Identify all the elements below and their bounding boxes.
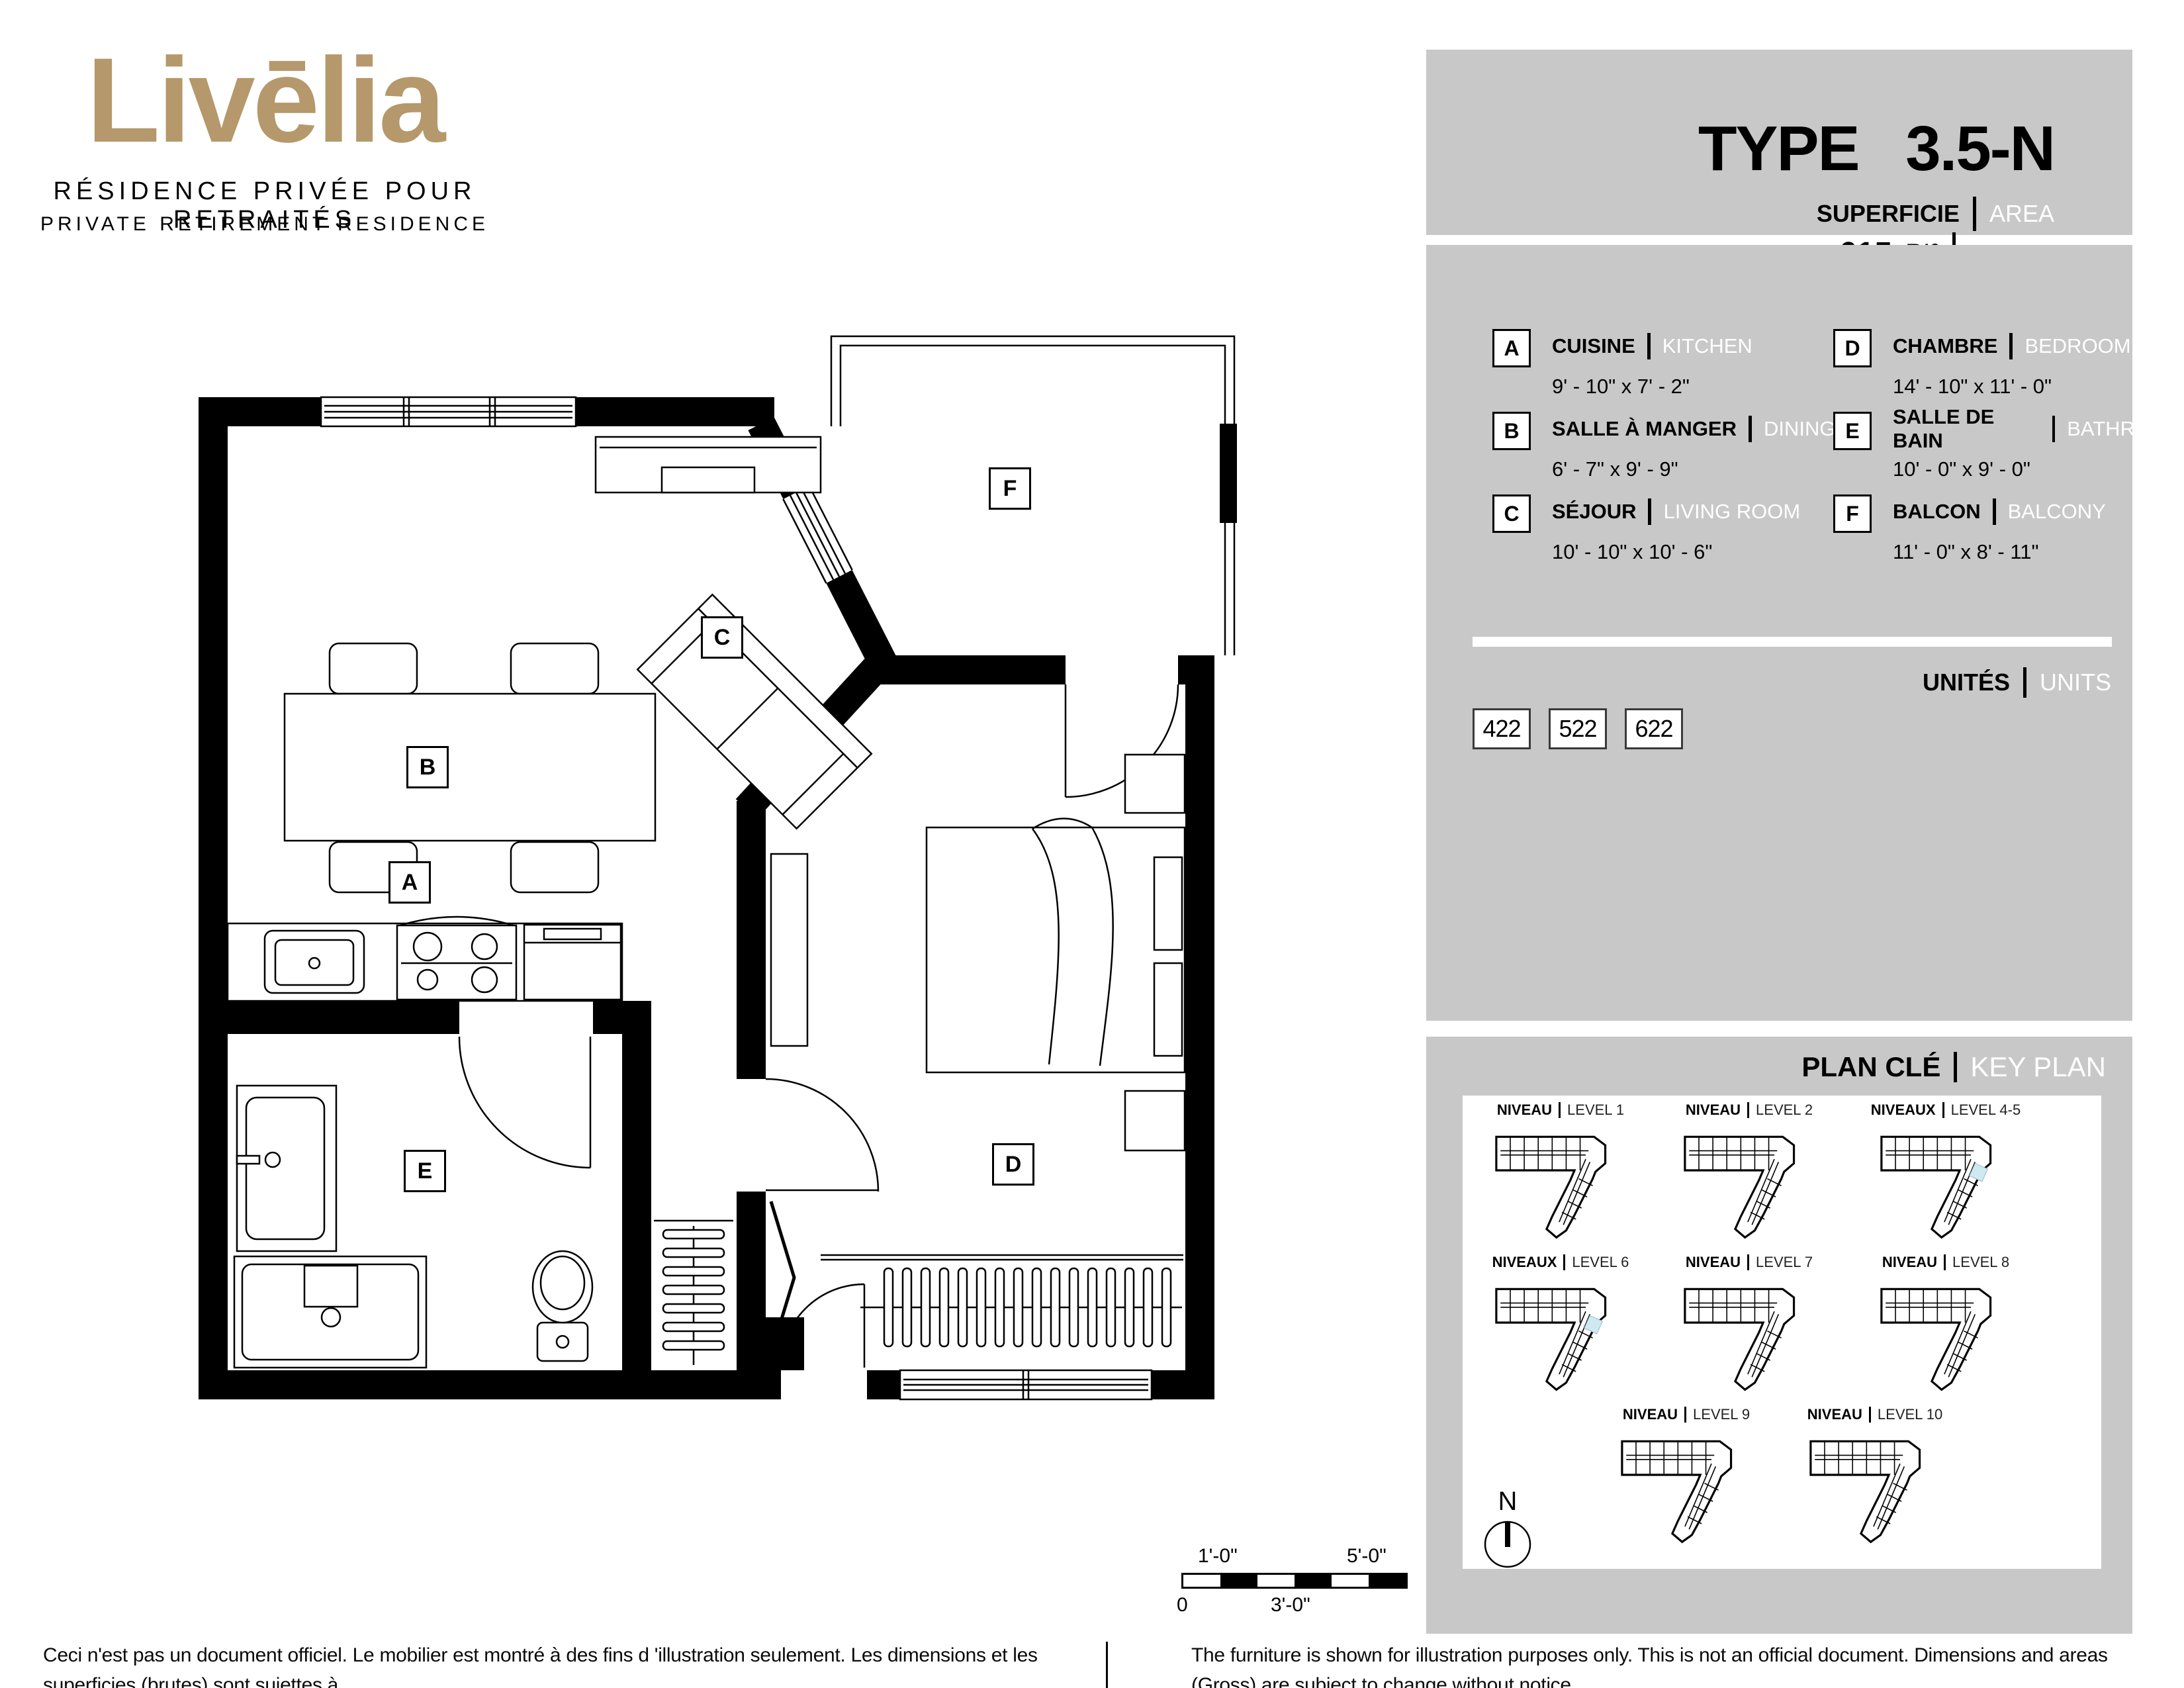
floor-plan-drawing	[172, 305, 1284, 1430]
keyplan-level-8: NIVEAULEVEL 8	[1866, 1252, 2025, 1398]
legend-name-fr: BALCON	[1893, 500, 1981, 524]
toilet-icon	[533, 1251, 592, 1361]
legend-name-fr: SALLE DE BAIN	[1893, 405, 2040, 453]
disclaimer-en-line1: The furniture is shown for illustration …	[1191, 1640, 2118, 1688]
legend-dims-b: 6' - 7" x 9' - 9"	[1552, 457, 1678, 481]
legend-name-a: CUISINE KITCHEN	[1552, 329, 1752, 363]
north-arrow: N	[1481, 1487, 1534, 1573]
unit-number-622: 622	[1625, 708, 1683, 749]
area-label: AREA	[1989, 200, 2054, 228]
room-label-bedroom: D	[992, 1143, 1034, 1186]
room-label-balcony: F	[989, 467, 1031, 510]
divider-bar	[1647, 333, 1651, 359]
level-label-fr: NIVEAU	[1686, 1102, 1741, 1119]
level-label-fr: NIVEAU	[1497, 1102, 1552, 1119]
level-label-en: LEVEL 6	[1572, 1254, 1629, 1271]
unites-label: UNITÉS	[1923, 669, 2010, 696]
level-label-en: LEVEL 7	[1756, 1254, 1813, 1271]
legend-dims-c: 10' - 10" x 10' - 6"	[1552, 540, 1712, 564]
stove-icon	[397, 917, 516, 1000]
window-top	[321, 397, 576, 426]
level-label-en: LEVEL 1	[1567, 1102, 1624, 1119]
door-bedroom	[766, 1079, 878, 1192]
legend-letter-d: D	[1833, 329, 1872, 367]
keyplan-level-4-5: NIVEAUXLEVEL 4-5	[1866, 1100, 2025, 1246]
room-label-living: C	[701, 616, 743, 659]
level-label-fr: NIVEAU	[1807, 1406, 1862, 1423]
legend-name-fr: SALLE À MANGER	[1552, 417, 1737, 441]
building-outline-icon	[1670, 1272, 1829, 1398]
legend-name-en: BALCONY	[2008, 500, 2106, 524]
door-bathroom	[459, 1037, 590, 1168]
legend-name-en: DINING	[1764, 417, 1836, 441]
keyplan-title-row: PLAN CLÉ KEY PLAN	[1801, 1051, 2106, 1083]
header-panel: TYPE 3.5-N SUPERFICIE AREA 615 PI² SQ. F…	[1426, 50, 2132, 235]
legend-name-e: SALLE DE BAIN BATHROOM	[1893, 412, 2184, 446]
level-label-fr: NIVEAU	[1882, 1254, 1937, 1271]
legend-name-en: BATHROOM	[2067, 417, 2184, 441]
keyplan-level-10: NIVEAULEVEL 10	[1796, 1405, 1954, 1550]
keyplan-level-9: NIVEAULEVEL 9	[1607, 1405, 1766, 1550]
legend-name-d: CHAMBRE BEDROOM	[1893, 329, 2131, 363]
scale-mark-5ft: 5'-0"	[1347, 1545, 1387, 1568]
key-plan-label: KEY PLAN	[1970, 1051, 2106, 1083]
level-label-en: LEVEL 9	[1693, 1406, 1750, 1423]
legend-dims-f: 11' - 0" x 8' - 11"	[1893, 540, 2039, 564]
level-label-fr: NIVEAU	[1686, 1254, 1741, 1271]
brand-logo: Livēlia	[46, 40, 483, 160]
balcony-railing	[831, 336, 1237, 655]
unit-type-title: TYPE 3.5-N	[1698, 113, 2054, 185]
superficie-label: SUPERFICIE	[1817, 200, 1960, 228]
keyplan-level-1: NIVEAULEVEL 1	[1481, 1100, 1640, 1246]
divider-bar	[1973, 197, 1976, 231]
room-label-dining: B	[406, 746, 449, 788]
building-outline-icon	[1866, 1120, 2025, 1246]
unit-number-522: 522	[1549, 708, 1607, 749]
divider-bar	[2009, 333, 2013, 359]
legend-letter-b: B	[1492, 412, 1531, 450]
legend-dims-e: 10' - 0" x 9' - 0"	[1893, 457, 2030, 481]
floorplan-sheet: Livēlia RÉSIDENCE PRIVÉE POUR RETRAITÉS …	[0, 0, 2184, 1688]
building-outline-icon	[1481, 1120, 1640, 1246]
level-label-en: LEVEL 10	[1878, 1406, 1942, 1423]
building-outline-icon	[1866, 1272, 2025, 1398]
disclaimer-fr-line1: Ceci n'est pas un document officiel. Le …	[43, 1640, 1085, 1688]
plan-cle-label: PLAN CLÉ	[1801, 1051, 1940, 1083]
units-title-row: UNITÉS UNITS	[1923, 667, 2111, 698]
vanity-sink-icon	[237, 1086, 336, 1251]
level-label-fr: NIVEAUX	[1492, 1254, 1557, 1271]
tv-console	[596, 437, 821, 492]
section-divider	[1473, 637, 2112, 647]
divider-bar	[2052, 416, 2056, 442]
legend-name-c: SÉJOUR LIVING ROOM	[1552, 494, 1800, 529]
dining-set	[285, 643, 655, 892]
legend-name-f: BALCON BALCONY	[1893, 494, 2106, 529]
legend-letter-e: E	[1833, 412, 1872, 450]
window-bedroom	[900, 1370, 1152, 1399]
legend-letter-c: C	[1492, 494, 1531, 533]
bedroom-closet	[821, 1255, 1183, 1346]
room-label-kitchen: A	[388, 861, 431, 904]
units-label: UNITS	[2040, 669, 2111, 696]
scale-bar	[1181, 1573, 1408, 1589]
level-label-en: LEVEL 2	[1756, 1102, 1813, 1119]
room-label-bathroom: E	[404, 1150, 446, 1192]
divider-bar	[2023, 667, 2026, 698]
north-arrow-icon	[1481, 1517, 1534, 1570]
legend-letter-f: F	[1833, 494, 1872, 533]
keyplan-level-7: NIVEAULEVEL 7	[1670, 1252, 1829, 1398]
brand-tagline-en: PRIVATE RETIREMENT RESIDENCE	[26, 213, 503, 236]
fridge-icon	[524, 925, 621, 1000]
level-label-en: LEVEL 4-5	[1951, 1102, 2021, 1119]
area-label-row: SUPERFICIE AREA	[1817, 197, 2054, 231]
building-outline-icon	[1796, 1425, 1954, 1550]
building-outline-icon	[1481, 1272, 1640, 1398]
kitchen-counter	[228, 917, 622, 1001]
building-outline-icon	[1670, 1120, 1829, 1246]
scale-mark-1ft: 1'-0"	[1198, 1545, 1238, 1568]
disclaimer-fr: Ceci n'est pas un document officiel. Le …	[43, 1640, 1085, 1688]
divider-bar	[1749, 416, 1752, 442]
legend-dims-a: 9' - 10" x 7' - 2"	[1552, 375, 1690, 399]
scale-mark-zero: 0	[1177, 1594, 1188, 1617]
bedroom-furniture	[771, 755, 1185, 1150]
bathroom-fixtures	[234, 1086, 592, 1368]
unit-number-422: 422	[1473, 708, 1531, 749]
legend-name-en: BEDROOM	[2025, 334, 2130, 358]
north-label: N	[1481, 1487, 1534, 1517]
legend-name-fr: CUISINE	[1552, 334, 1635, 358]
keyplan-level-2: NIVEAULEVEL 2	[1670, 1100, 1829, 1246]
window-diagonal	[783, 486, 852, 583]
legend-name-fr: CHAMBRE	[1893, 334, 1997, 358]
shower-icon	[234, 1256, 426, 1368]
level-label-fr: NIVEAU	[1623, 1406, 1678, 1423]
divider-bar	[1954, 1052, 1957, 1082]
legend-name-en: LIVING ROOM	[1663, 500, 1800, 524]
footer-divider	[1106, 1642, 1108, 1688]
level-label-fr: NIVEAUX	[1871, 1102, 1936, 1119]
disclaimer-en: The furniture is shown for illustration …	[1191, 1640, 2118, 1688]
building-outline-icon	[1607, 1425, 1766, 1550]
scale-mark-3ft: 3'-0"	[1271, 1594, 1310, 1617]
legend-letter-a: A	[1492, 329, 1531, 367]
legend-name-en: KITCHEN	[1662, 334, 1752, 358]
keyplan-level-6: NIVEAUXLEVEL 6	[1481, 1252, 1640, 1398]
divider-bar	[1993, 498, 1996, 525]
legend-name-fr: SÉJOUR	[1552, 500, 1636, 524]
level-label-en: LEVEL 8	[1952, 1254, 2009, 1271]
divider-bar	[1648, 498, 1651, 525]
legend-name-b: SALLE À MANGER DINING	[1552, 412, 1836, 446]
legend-dims-d: 14' - 10" x 11' - 0"	[1893, 375, 2052, 399]
